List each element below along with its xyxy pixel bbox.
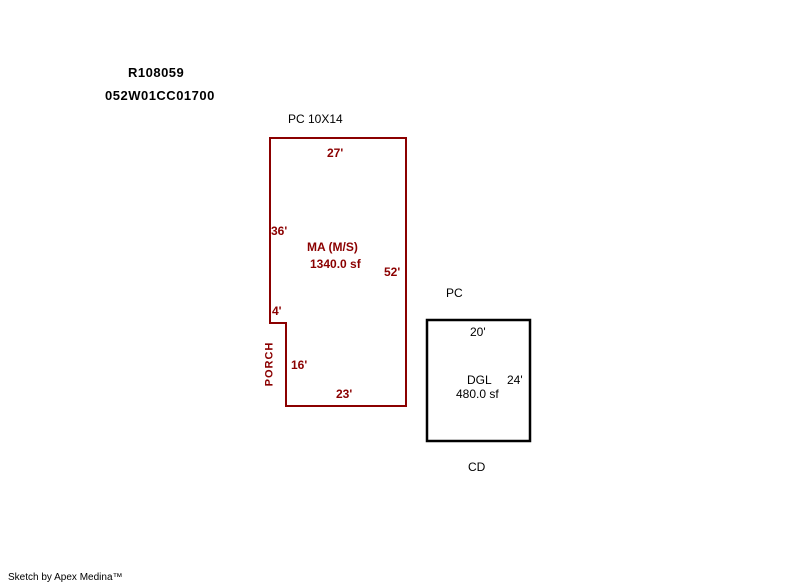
main-building-area: 1340.0 sf: [310, 258, 361, 271]
main-dim-top: 27': [327, 147, 343, 160]
main-building-name: MA (M/S): [307, 241, 358, 254]
main-dim-bottom: 23': [336, 388, 352, 401]
sketch-credit: Sketch by Apex Medina™: [8, 571, 123, 584]
main-dim-notch: 4': [272, 305, 282, 318]
second-building-area: 480.0 sf: [456, 388, 499, 401]
porch-label: PORCH: [264, 342, 277, 387]
main-dim-right: 52': [384, 266, 400, 279]
main-dim-left-upper: 36': [271, 225, 287, 238]
parcel-id-label: 052W01CC01700: [105, 89, 215, 102]
second-building-bottom-note: CD: [468, 461, 485, 474]
second-building-top-note: PC: [446, 287, 463, 300]
second-dim-top: 20': [470, 326, 486, 339]
record-id-label: R108059: [128, 66, 184, 79]
second-dim-right: 24': [507, 374, 523, 387]
pc-size-note: PC 10X14: [288, 113, 343, 126]
property-sketch-canvas: R108059 052W01CC01700 PC 10X14 27' 36' M…: [0, 0, 800, 587]
second-building-name: DGL: [467, 374, 492, 387]
main-dim-porch-side: 16': [291, 359, 307, 372]
